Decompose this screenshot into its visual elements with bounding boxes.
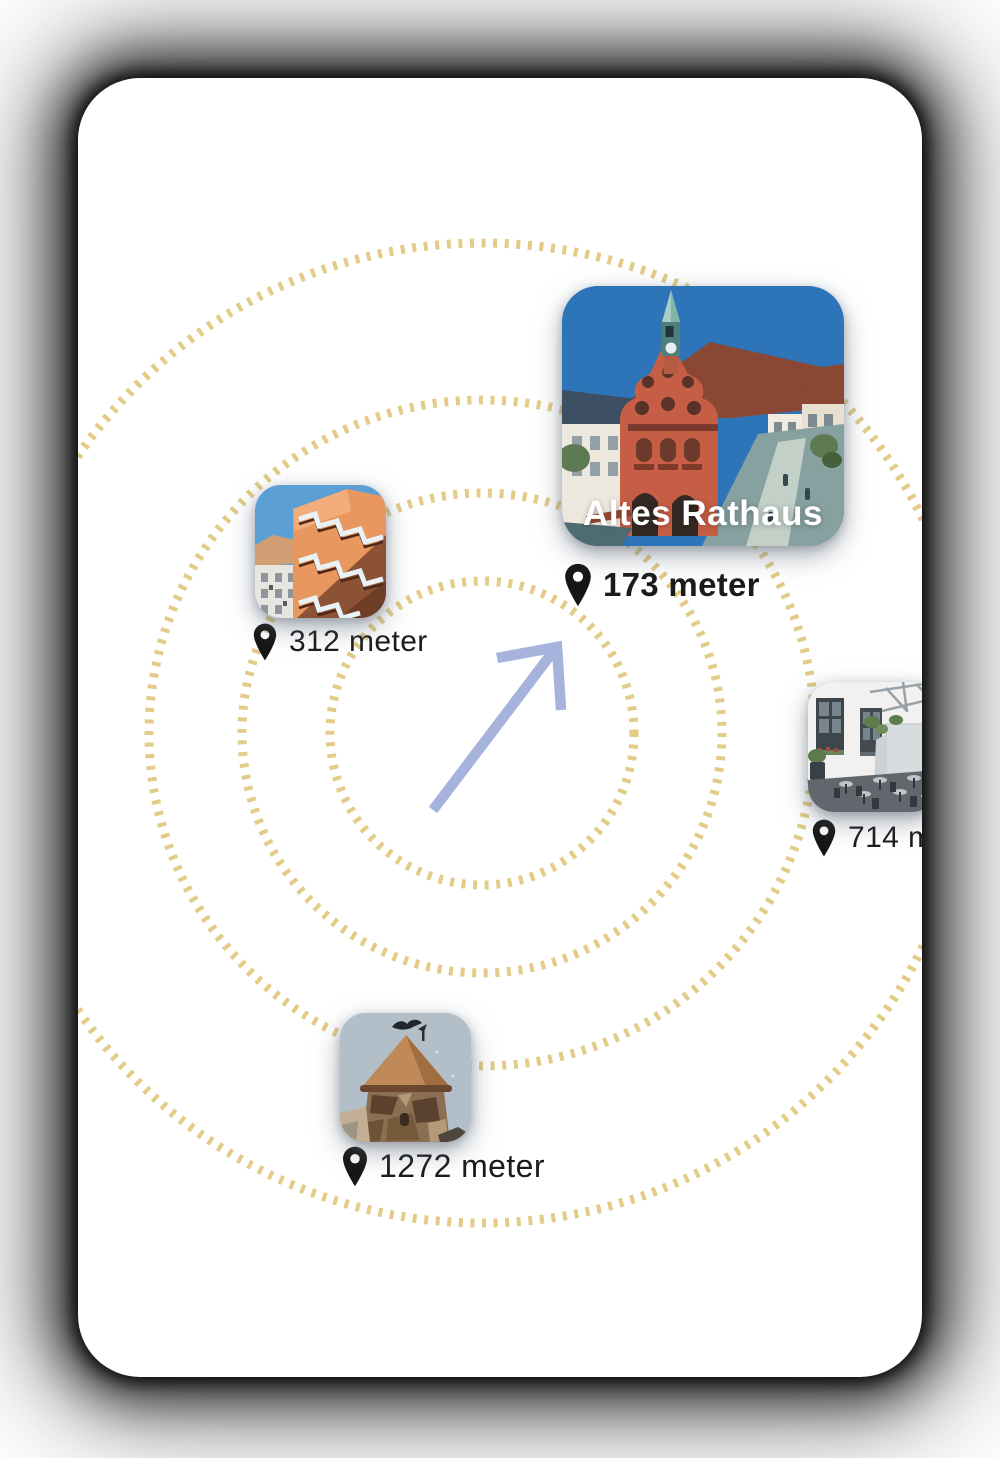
poi-card-altes-rathaus[interactable]: Altes Rathaus 173 meter	[562, 286, 844, 609]
poi-card-312[interactable]: 312 meter	[255, 485, 386, 663]
distance-text: 312 meter	[289, 625, 428, 659]
location-pin-icon	[251, 621, 279, 663]
pin-shape	[343, 1147, 367, 1187]
distance-text: 714 m	[848, 821, 922, 855]
poi-card-714[interactable]: 714 m	[808, 682, 922, 859]
poi-title: Altes Rathaus	[562, 494, 844, 534]
poi-photo-714[interactable]	[808, 682, 922, 812]
poi-photo-312[interactable]	[255, 485, 386, 618]
distance-row: 312 meter	[251, 621, 386, 663]
pin-shape	[813, 820, 835, 857]
pin-shape	[565, 564, 591, 606]
distance-row: 173 meter	[562, 561, 844, 609]
location-pin-icon	[810, 817, 838, 859]
orange-stair-building-photo	[255, 485, 386, 618]
poi-card-1272[interactable]: 1272 meter	[340, 1013, 471, 1189]
distance-text: 1272 meter	[379, 1148, 545, 1185]
poi-photo-altes-rathaus[interactable]: Altes Rathaus	[562, 286, 844, 546]
distance-row: 714 m	[810, 817, 922, 859]
pin-shape	[254, 624, 276, 661]
radar-screen-card: Altes Rathaus 173 meter	[78, 78, 922, 1377]
distance-text: 173 meter	[603, 566, 760, 604]
location-pin-icon	[562, 561, 594, 609]
courtyard-cafe-photo	[808, 682, 922, 812]
poi-photo-1272[interactable]	[340, 1013, 471, 1142]
distance-row: 1272 meter	[340, 1144, 471, 1189]
location-pin-icon	[340, 1144, 370, 1189]
stone-tower-photo	[340, 1013, 471, 1142]
arrow-path	[433, 647, 561, 810]
